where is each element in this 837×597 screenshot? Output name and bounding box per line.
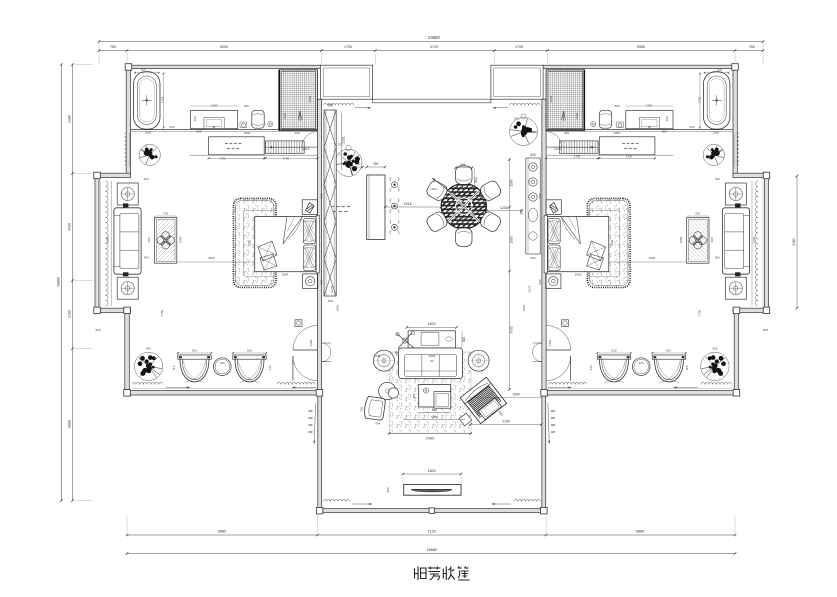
svg-text:800: 800 — [717, 68, 722, 72]
svg-text:910: 910 — [611, 349, 616, 353]
svg-text:1750: 1750 — [698, 309, 702, 316]
svg-text:2000: 2000 — [575, 273, 582, 277]
svg-text:150: 150 — [520, 209, 524, 215]
svg-text:800: 800 — [662, 130, 667, 134]
svg-text:1214: 1214 — [303, 147, 310, 151]
svg-text:1700: 1700 — [574, 155, 581, 159]
svg-text:1735: 1735 — [161, 96, 165, 103]
svg-text:1800: 1800 — [428, 469, 436, 473]
svg-text:1700: 1700 — [626, 155, 633, 159]
svg-text:600: 600 — [169, 125, 174, 129]
svg-text:3720: 3720 — [430, 45, 438, 49]
svg-text:910: 910 — [666, 349, 671, 353]
svg-text:1594: 1594 — [336, 304, 340, 311]
svg-text:900: 900 — [355, 162, 361, 166]
svg-text:2000: 2000 — [282, 273, 289, 277]
svg-text:450: 450 — [564, 131, 569, 135]
svg-text:3720: 3720 — [510, 326, 514, 333]
svg-text:466: 466 — [460, 163, 466, 167]
svg-text:2279: 2279 — [330, 285, 334, 292]
svg-text:5880: 5880 — [636, 530, 644, 534]
svg-text:800: 800 — [196, 130, 201, 134]
svg-text:4430: 4430 — [68, 223, 72, 231]
svg-text:1214: 1214 — [554, 147, 561, 151]
svg-text:371: 371 — [514, 117, 519, 121]
svg-text:500: 500 — [432, 408, 437, 412]
svg-text:1060: 1060 — [145, 131, 152, 135]
svg-text:371: 371 — [338, 143, 343, 147]
svg-text:118: 118 — [172, 365, 176, 370]
svg-text:500: 500 — [763, 328, 768, 332]
svg-text:1090: 1090 — [512, 393, 520, 397]
svg-text:1700: 1700 — [344, 45, 352, 49]
svg-text:800: 800 — [141, 68, 146, 72]
svg-text:1600: 1600 — [610, 239, 614, 246]
svg-text:500: 500 — [530, 256, 535, 260]
svg-text:1604: 1604 — [548, 339, 552, 346]
svg-text:325: 325 — [638, 361, 643, 365]
svg-text:500: 500 — [462, 337, 466, 343]
svg-text:990: 990 — [373, 162, 379, 166]
svg-text:2806: 2806 — [429, 354, 436, 358]
svg-text:350: 350 — [665, 116, 669, 121]
svg-text:2400: 2400 — [426, 437, 434, 441]
svg-text:1060: 1060 — [713, 131, 720, 135]
svg-text:500: 500 — [530, 153, 536, 157]
svg-text:400: 400 — [143, 177, 148, 181]
svg-text:1300: 1300 — [646, 104, 653, 108]
svg-text:1300: 1300 — [211, 104, 218, 108]
svg-text:90: 90 — [394, 351, 398, 355]
svg-text:500: 500 — [328, 299, 333, 303]
svg-text:1000: 1000 — [244, 131, 251, 135]
svg-text:2400: 2400 — [208, 256, 215, 260]
svg-text:2279: 2279 — [528, 285, 532, 292]
svg-text:2190: 2190 — [502, 419, 510, 423]
svg-text:760: 760 — [749, 45, 755, 49]
svg-text:1500: 1500 — [510, 179, 514, 186]
svg-text:1200: 1200 — [575, 112, 579, 119]
svg-text:1735: 1735 — [698, 96, 702, 103]
svg-text:700: 700 — [695, 212, 700, 216]
svg-text:2280: 2280 — [68, 115, 72, 123]
svg-text:500: 500 — [95, 328, 100, 332]
svg-text:1600: 1600 — [248, 239, 252, 246]
svg-text:1700: 1700 — [515, 45, 523, 49]
svg-text:1746: 1746 — [374, 354, 381, 358]
svg-text:18880: 18880 — [426, 548, 437, 552]
svg-text:2160: 2160 — [68, 310, 72, 318]
svg-text:5980: 5980 — [637, 45, 645, 49]
svg-text:720: 720 — [360, 407, 364, 412]
svg-text:910: 910 — [247, 349, 252, 353]
svg-text:5880: 5880 — [218, 530, 226, 534]
svg-text:2000: 2000 — [549, 95, 553, 102]
svg-text:650: 650 — [412, 393, 416, 398]
svg-text:90: 90 — [430, 359, 434, 363]
svg-text:300: 300 — [144, 256, 149, 260]
svg-text:1050: 1050 — [179, 236, 183, 243]
svg-text:365: 365 — [712, 347, 717, 351]
svg-text:812: 812 — [474, 177, 478, 183]
svg-text:2700: 2700 — [106, 236, 110, 243]
svg-text:500: 500 — [320, 193, 324, 198]
svg-text:1050: 1050 — [679, 236, 683, 243]
svg-text:450: 450 — [294, 131, 299, 135]
svg-text:325: 325 — [220, 361, 225, 365]
svg-text:300: 300 — [147, 237, 151, 242]
svg-text:300: 300 — [715, 256, 720, 260]
svg-text:1014: 1014 — [430, 187, 437, 191]
svg-text:1500: 1500 — [428, 322, 436, 326]
svg-text:1900: 1900 — [510, 236, 514, 243]
svg-text:1594: 1594 — [522, 304, 526, 311]
svg-text:360: 360 — [146, 347, 151, 351]
svg-text:23680: 23680 — [428, 35, 440, 40]
svg-text:560: 560 — [244, 104, 249, 108]
svg-text:500: 500 — [538, 193, 542, 198]
svg-text:704: 704 — [375, 422, 380, 426]
svg-text:1234: 1234 — [500, 206, 508, 210]
svg-text:1914: 1914 — [404, 202, 412, 206]
svg-text:2400: 2400 — [649, 256, 656, 260]
svg-text:3460: 3460 — [792, 238, 796, 245]
svg-text:7120: 7120 — [427, 530, 435, 534]
svg-text:1750: 1750 — [160, 309, 164, 316]
svg-text:1600: 1600 — [309, 339, 313, 346]
svg-text:700: 700 — [163, 212, 168, 216]
svg-text:146: 146 — [268, 365, 272, 370]
svg-text:2700: 2700 — [752, 236, 756, 243]
svg-text:300: 300 — [710, 237, 714, 242]
svg-text:500: 500 — [320, 279, 324, 284]
svg-text:500: 500 — [328, 104, 334, 108]
svg-text:118: 118 — [685, 365, 689, 370]
svg-text:600: 600 — [689, 125, 694, 129]
svg-text:1200: 1200 — [283, 112, 287, 119]
svg-text:400: 400 — [715, 177, 720, 181]
svg-text:3680: 3680 — [68, 420, 72, 428]
svg-text:350: 350 — [193, 116, 197, 121]
svg-text:10860: 10860 — [56, 277, 60, 287]
svg-text:146: 146 — [589, 365, 593, 370]
svg-text:500: 500 — [538, 279, 542, 284]
svg-text:2000: 2000 — [308, 95, 312, 102]
svg-text:6000: 6000 — [220, 45, 228, 49]
svg-text:760: 760 — [110, 45, 116, 49]
svg-text:1200: 1200 — [431, 415, 438, 419]
svg-text:1000: 1000 — [613, 131, 620, 135]
svg-text:350: 350 — [386, 487, 390, 492]
svg-text:560: 560 — [614, 104, 619, 108]
svg-text:910: 910 — [192, 349, 197, 353]
